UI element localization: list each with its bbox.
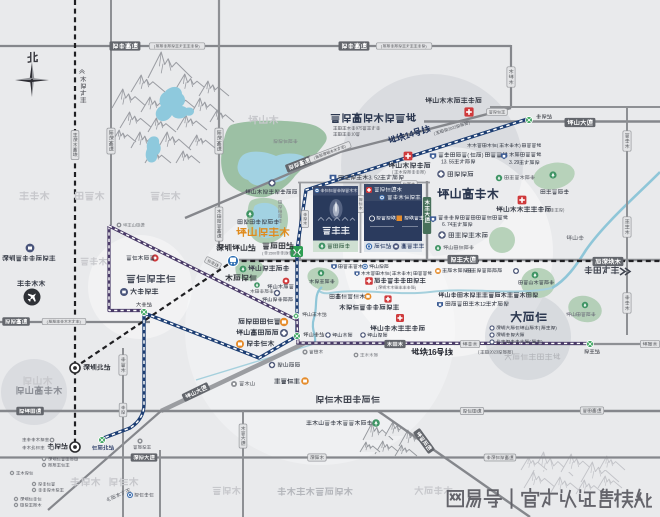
- svg-text:(: (: [467, 153, 469, 159]
- svg-text:5: 5: [451, 159, 454, 165]
- svg-text:): ): [482, 153, 484, 159]
- svg-text:2: 2: [377, 175, 380, 181]
- svg-text:2: 2: [483, 302, 486, 308]
- svg-text:.: .: [446, 159, 447, 165]
- svg-text:4: 4: [450, 222, 453, 228]
- svg-text:9: 9: [517, 160, 520, 166]
- svg-text:.: .: [512, 160, 513, 166]
- svg-text:.: .: [445, 222, 446, 228]
- svg-text:6: 6: [432, 348, 437, 357]
